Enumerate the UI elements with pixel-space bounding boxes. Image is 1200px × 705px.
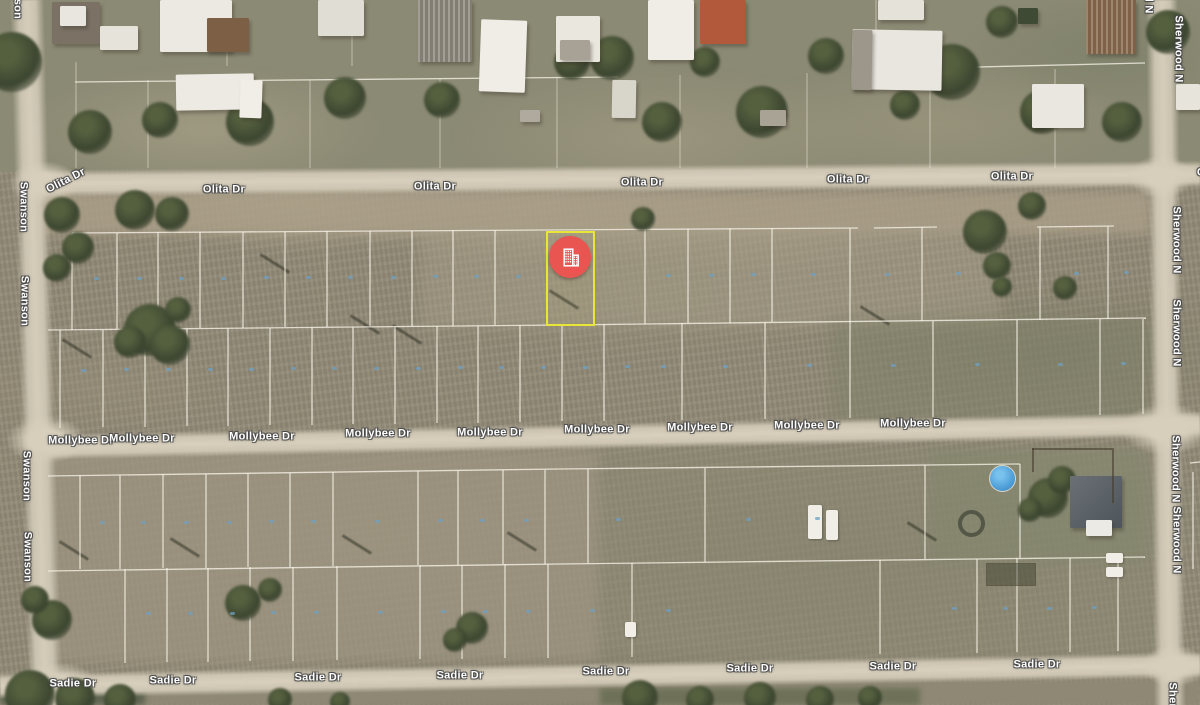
survey-dot	[474, 275, 479, 278]
roof-ridges	[1086, 0, 1136, 54]
street-label: Sherwood N	[1143, 0, 1154, 14]
tree	[258, 578, 282, 602]
fence-line	[1032, 448, 1112, 450]
survey-dot	[141, 521, 146, 524]
tree	[858, 686, 882, 705]
street-label: Swanson	[22, 532, 33, 582]
street-label: Mollybee Dr	[880, 419, 946, 430]
survey-dot	[227, 521, 232, 524]
survey-dot	[269, 520, 274, 523]
survey-dot	[433, 275, 438, 278]
tree	[443, 628, 467, 652]
survey-dot	[124, 368, 129, 371]
survey-dot	[100, 521, 105, 524]
parcel-line	[1190, 462, 1200, 463]
tree	[890, 90, 920, 120]
vehicle	[1106, 553, 1123, 563]
tree	[115, 190, 155, 230]
parcel-line	[560, 464, 1020, 469]
tree	[142, 102, 178, 138]
survey-dot	[230, 612, 235, 615]
buildings-icon	[557, 244, 584, 271]
tree	[986, 6, 1018, 38]
building-roof	[239, 80, 262, 119]
survey-dot	[441, 610, 446, 613]
building-roof	[1086, 520, 1112, 536]
tree	[330, 692, 350, 705]
survey-dot	[625, 365, 630, 368]
survey-dot	[746, 518, 751, 521]
survey-dot	[811, 273, 816, 276]
street-label: Sherwood N	[1167, 682, 1178, 705]
survey-dot	[1074, 272, 1079, 275]
parcel-line	[72, 228, 858, 233]
building-roof	[100, 26, 138, 50]
swimming-pool	[989, 465, 1016, 492]
street-label: Mollybee Dr	[667, 423, 733, 434]
survey-dot	[891, 364, 896, 367]
building-roof	[648, 0, 694, 60]
survey-dot	[271, 611, 276, 614]
tree	[1053, 276, 1077, 300]
street-label: Sherwood N	[1171, 506, 1182, 573]
survey-dot	[94, 277, 99, 280]
parcel-line	[48, 469, 560, 476]
trampoline	[958, 510, 985, 537]
tree	[225, 585, 261, 621]
street-label: Mollybee Dr	[564, 425, 630, 436]
street-label: Olita Dr	[621, 178, 663, 189]
survey-dot	[1003, 607, 1008, 610]
building-roof	[700, 0, 746, 44]
survey-dot	[184, 521, 189, 524]
street-label: Mollybee Dr	[345, 429, 411, 440]
street-label: Mollybee Dr	[457, 428, 523, 439]
street-label: Swanson	[18, 182, 29, 232]
vehicle	[826, 510, 838, 540]
survey-dot	[249, 368, 254, 371]
survey-dot	[1092, 606, 1097, 609]
tree	[155, 197, 189, 231]
survey-dot	[1058, 363, 1063, 366]
street-label: Sadie Dr	[436, 671, 483, 682]
building-roof	[560, 40, 590, 60]
survey-dot	[885, 273, 890, 276]
survey-dot	[348, 276, 353, 279]
survey-dot	[375, 520, 380, 523]
survey-dot	[221, 277, 226, 280]
tree	[68, 110, 112, 154]
street-label: Olita Dr	[414, 182, 456, 193]
survey-dot	[709, 274, 714, 277]
building-roof	[1176, 84, 1200, 110]
street-label: Mollybee Dr	[48, 436, 114, 447]
street-label: Swanson	[12, 0, 23, 19]
tree	[424, 82, 460, 118]
survey-dot	[526, 610, 531, 613]
tree	[114, 326, 146, 358]
vehicle	[1106, 567, 1123, 577]
survey-dot	[332, 367, 337, 370]
map-canvas[interactable]: Olita DrOlita DrOlita DrOlita DrOlita Dr…	[0, 0, 1200, 705]
survey-dot	[661, 365, 666, 368]
survey-dot	[666, 274, 671, 277]
building-roof	[1018, 8, 1038, 24]
survey-dot	[583, 366, 588, 369]
survey-dot	[458, 366, 463, 369]
tree	[1018, 498, 1042, 522]
survey-dot	[1047, 607, 1052, 610]
street-label: Sadie Dr	[869, 662, 916, 673]
survey-dot	[1124, 271, 1129, 274]
parcel-line	[1037, 226, 1114, 227]
street-label: Mollybee Dr	[774, 421, 840, 432]
survey-dot	[438, 519, 443, 522]
street-label: Swanson	[21, 451, 32, 501]
tree	[21, 586, 49, 614]
tree	[324, 77, 366, 119]
tree	[150, 325, 190, 365]
building-roof	[520, 110, 540, 122]
street-label: Olita Dr	[203, 185, 245, 196]
building-roof	[878, 0, 924, 20]
survey-dot	[391, 276, 396, 279]
street-label: Swanson	[19, 276, 30, 326]
survey-dot	[952, 607, 957, 610]
survey-dot	[264, 276, 269, 279]
survey-dot	[723, 365, 728, 368]
survey-dot	[374, 367, 379, 370]
survey-dot	[524, 519, 529, 522]
survey-dot	[291, 367, 296, 370]
building-roof	[479, 19, 527, 93]
survey-dot	[499, 366, 504, 369]
survey-dot	[590, 609, 595, 612]
survey-dot	[137, 277, 142, 280]
street-label: Sherwood N	[1171, 206, 1182, 273]
parcel-line	[560, 318, 1146, 325]
tree	[963, 210, 1007, 254]
street-label: Olita Dr	[827, 175, 869, 186]
property-marker[interactable]	[549, 236, 591, 278]
street-label: Sadie Dr	[582, 667, 629, 678]
tree	[1018, 192, 1046, 220]
survey-dot	[378, 611, 383, 614]
tree	[808, 38, 844, 74]
tree	[642, 102, 682, 142]
street-label: Sadie Dr	[149, 676, 196, 687]
building-roof	[612, 80, 637, 118]
street-label: Mollybee Dr	[109, 434, 175, 445]
garden-plot	[986, 563, 1036, 586]
tree	[992, 277, 1012, 297]
parcel-line	[560, 557, 1145, 564]
street-label: Sadie Dr	[294, 673, 341, 684]
building-roof	[760, 110, 786, 126]
tree	[1102, 102, 1142, 142]
street-label: Sadie Dr	[49, 679, 96, 690]
street-label: Olita Dr	[991, 172, 1033, 183]
survey-dot	[208, 368, 213, 371]
tree	[44, 197, 80, 233]
survey-dot	[81, 369, 86, 372]
street-label: Sadie Dr	[1013, 660, 1060, 671]
tree	[983, 252, 1011, 280]
survey-dot	[807, 364, 812, 367]
fence-line	[1032, 448, 1034, 472]
fence-line	[1112, 448, 1114, 503]
survey-dot	[314, 611, 319, 614]
tree	[268, 688, 292, 705]
survey-dot	[541, 366, 546, 369]
survey-dot	[815, 517, 820, 520]
survey-dot	[975, 363, 980, 366]
tree	[165, 297, 191, 323]
building-roof	[1032, 84, 1084, 128]
survey-dot	[188, 612, 193, 615]
survey-dot	[480, 519, 485, 522]
vehicle	[625, 622, 636, 637]
street-label: Sherwood N	[1171, 299, 1182, 366]
survey-dot	[956, 272, 961, 275]
survey-dot	[179, 277, 184, 280]
survey-dot	[483, 610, 488, 613]
survey-dot	[306, 276, 311, 279]
survey-dot	[616, 518, 621, 521]
building-roof	[851, 30, 872, 90]
survey-dot	[1121, 362, 1126, 365]
survey-dot	[516, 275, 521, 278]
tree	[631, 207, 655, 231]
building-roof	[207, 18, 249, 52]
survey-dot	[416, 367, 421, 370]
survey-dot	[166, 368, 171, 371]
roof-ridges	[418, 0, 472, 62]
street-label: Sherwood N	[1170, 435, 1181, 502]
survey-dot	[311, 520, 316, 523]
survey-dot	[146, 612, 151, 615]
parcel-line	[874, 227, 937, 228]
tree	[43, 254, 71, 282]
building-roof	[60, 6, 86, 26]
vehicle	[808, 505, 822, 539]
building-roof	[318, 0, 364, 36]
survey-dot	[751, 273, 756, 276]
street-label: Sadie Dr	[726, 664, 773, 675]
tree	[690, 47, 720, 77]
street-label: Sherwood N	[1173, 15, 1184, 82]
street-label: Mollybee Dr	[229, 432, 295, 443]
survey-dot	[666, 609, 671, 612]
